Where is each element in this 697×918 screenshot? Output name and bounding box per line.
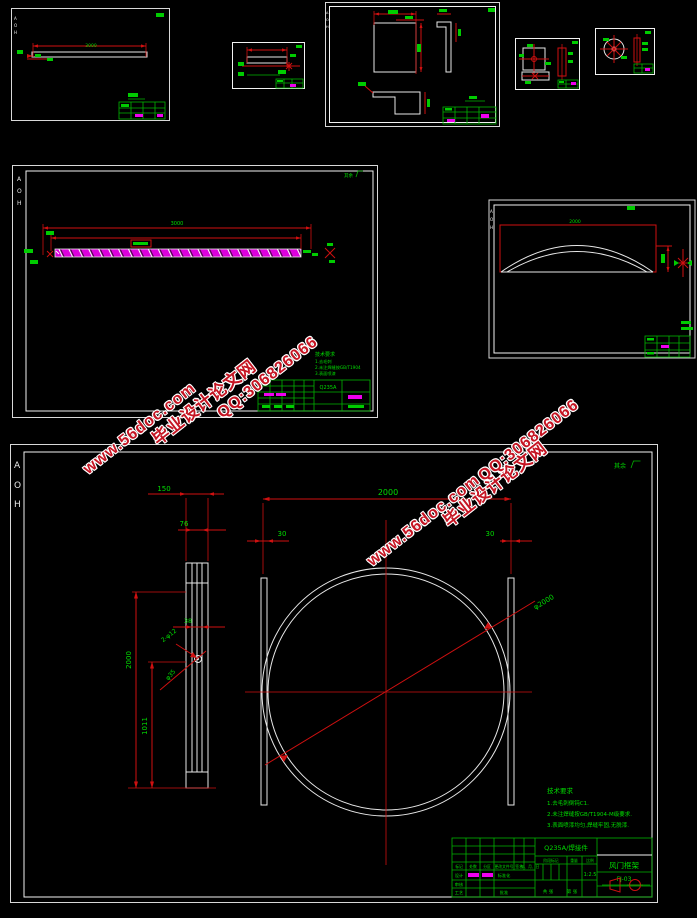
svg-text:批准: 批准 <box>500 889 508 896</box>
svg-text:2.未注焊缝按GB/T1904-M级要求.: 2.未注焊缝按GB/T1904-M级要求. <box>547 810 632 818</box>
sheet-door-drawing: A O H 150 <box>10 444 658 903</box>
dome-notes <box>681 321 693 330</box>
svg-text:处数: 处数 <box>469 864 477 869</box>
svg-text:1.去毛刺: 1.去毛刺 <box>315 358 332 365</box>
zone-o: O <box>14 23 17 28</box>
sheet-bracket-drawing: A O H <box>325 2 500 127</box>
sheet-clamp-drawing <box>232 42 305 89</box>
plate-title-block: Q235A <box>258 380 370 411</box>
dim-2000-top: 2000 <box>378 488 398 497</box>
svg-text:A: A <box>17 176 22 183</box>
svg-text:A: A <box>490 209 493 214</box>
svg-text:H: H <box>14 500 21 510</box>
roughness-mark: 其余 <box>344 172 353 179</box>
bracket-geometry <box>358 9 461 114</box>
roughness-mark <box>627 206 635 210</box>
sheet-beam-drawing: A O H 3000 <box>11 8 170 121</box>
svg-text:H: H <box>17 200 22 207</box>
dome-title-block <box>645 336 690 357</box>
dim-38: 38 <box>184 617 192 625</box>
svg-text:O: O <box>490 217 493 222</box>
pin-geometry <box>600 34 648 66</box>
technical-notes: 技术要求 1.去毛刺倒钝C1. 2.未注焊缝按GB/T1904-M级要求. 3.… <box>547 786 632 829</box>
roughness-note: 其余 <box>614 461 641 470</box>
dome-geometry: 2000 <box>500 219 692 277</box>
sheet-pin-drawing <box>595 28 655 75</box>
svg-text:比例: 比例 <box>586 858 594 863</box>
roughness-mark <box>296 45 302 48</box>
svg-text:分区: 分区 <box>483 864 491 869</box>
dim-phi35: φ35 <box>164 668 177 682</box>
clamp-geometry <box>238 47 300 76</box>
svg-text:第 张: 第 张 <box>567 888 578 895</box>
zone-letters: A O H <box>490 209 493 230</box>
material-label: Q235A/焊接件 <box>544 843 588 852</box>
plate-notes: 技术要求 1.去毛刺 2.未注焊缝按GB/T1904 3.表面喷漆 <box>315 351 361 377</box>
svg-text:审核: 审核 <box>455 881 464 888</box>
svg-text:年、月、日: 年、月、日 <box>521 864 540 869</box>
zone-a: A <box>14 16 17 21</box>
svg-text:3.表面喷漆: 3.表面喷漆 <box>315 370 336 377</box>
roughness-mark <box>645 31 651 34</box>
roughness-mark <box>488 8 495 12</box>
svg-text:设计: 设计 <box>455 872 463 879</box>
zone-h: H <box>14 30 17 35</box>
dim-2phi12: 2-φ12 <box>160 628 178 644</box>
zone-letters: A O H <box>14 461 21 510</box>
roughness-mark <box>572 41 578 44</box>
dim-30-left: 30 <box>278 530 287 538</box>
svg-text:A: A <box>326 11 329 15</box>
svg-text:O: O <box>17 188 22 195</box>
svg-text:H: H <box>490 225 493 230</box>
zone-letters: A O H <box>326 11 329 29</box>
svg-text:标准化: 标准化 <box>498 872 511 879</box>
svg-text:标记: 标记 <box>455 864 463 869</box>
svg-text:O: O <box>326 18 329 22</box>
svg-text:工艺: 工艺 <box>455 890 463 895</box>
cad-workspace: A O H 3000 <box>0 0 697 918</box>
drawing-code: FJ-03 <box>617 876 632 883</box>
notes-title: 技术要求 <box>315 351 335 358</box>
svg-text:重量: 重量 <box>570 858 578 863</box>
dome-width-dim: 2000 <box>569 219 581 225</box>
zone-letters: A O H <box>17 176 22 207</box>
dim-76: 76 <box>180 520 189 528</box>
sheet-dome-drawing: A O H 2000 <box>487 197 697 362</box>
beam-geometry: 3000 <box>17 43 147 61</box>
beam-title-block <box>119 93 165 119</box>
sheet-plate-drawing: A O H 3000 <box>12 165 378 418</box>
svg-text:1.去毛刺倒钝C1.: 1.去毛刺倒钝C1. <box>547 799 589 807</box>
beam-length-dim: 3000 <box>85 43 97 49</box>
dim-150: 150 <box>157 485 170 493</box>
svg-text:2.未注焊缝按GB/T1904: 2.未注焊缝按GB/T1904 <box>315 364 361 371</box>
dim-1011: 1011 <box>141 717 149 735</box>
svg-text:A: A <box>14 461 21 471</box>
hatched-plate <box>55 249 301 257</box>
dim-2000-left: 2000 <box>125 651 133 669</box>
dim-phi2000: φ2000 <box>532 593 555 611</box>
notes-title: 技术要求 <box>547 786 574 795</box>
dimensions: 150 76 2000 30 30 φ2000 <box>125 485 556 865</box>
svg-text:更改文件号: 更改文件号 <box>495 864 514 869</box>
door-title-block: 标记 处数 分区 更改文件号 签名 年、月、日 设计 标准化 审核 工艺 批准 … <box>452 838 652 897</box>
clamp-title-block <box>276 79 303 88</box>
hinge-title-block <box>558 80 578 88</box>
svg-text:阶段标记: 阶段标记 <box>543 858 558 863</box>
plate-length-dim: 3000 <box>171 221 184 227</box>
hinge-geometry <box>519 44 573 84</box>
part-name: 风门框架 <box>609 860 639 870</box>
door-side-view <box>186 563 208 788</box>
roughness-mark <box>156 13 164 17</box>
bracket-title-block <box>443 96 496 124</box>
material-label: Q235A <box>320 385 337 391</box>
sheet-hinge-drawing <box>515 38 580 90</box>
zone-letters: A O H <box>14 16 17 35</box>
roughness-mark: 其余 <box>614 462 626 470</box>
dim-30-right: 30 <box>486 530 495 538</box>
svg-text:共 张: 共 张 <box>543 888 554 895</box>
scale-value: 1:2.5 <box>584 872 597 878</box>
plate-geometry: 3000 <box>24 221 335 264</box>
svg-text:H: H <box>326 25 329 29</box>
svg-text:O: O <box>14 481 21 491</box>
svg-text:3.表面喷漆均匀,焊缝牢固,无脱漆.: 3.表面喷漆均匀,焊缝牢固,无脱漆. <box>547 821 629 829</box>
